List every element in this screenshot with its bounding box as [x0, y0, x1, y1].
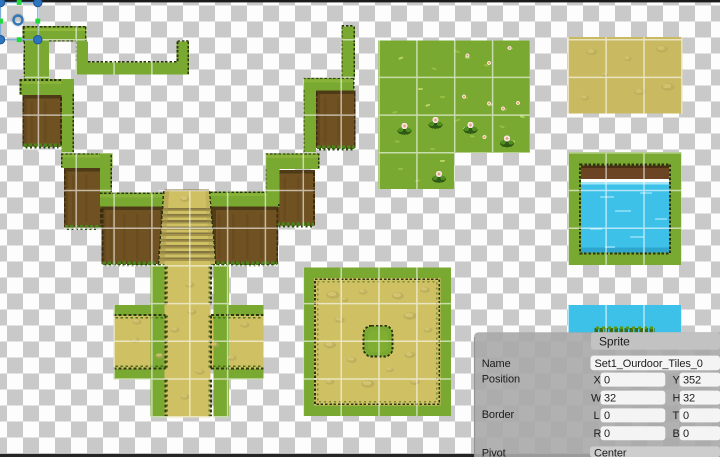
svg-text:W: W — [591, 392, 602, 404]
svg-text:0: 0 — [683, 428, 689, 440]
svg-text:Pivot: Pivot — [482, 448, 506, 457]
svg-text:T: T — [673, 410, 680, 422]
svg-text:Name: Name — [482, 358, 511, 370]
svg-text:B: B — [673, 428, 680, 440]
svg-text:32: 32 — [604, 392, 616, 404]
svg-text:Border: Border — [482, 409, 515, 421]
svg-text:X: X — [594, 374, 602, 386]
svg-text:Position: Position — [482, 373, 520, 385]
svg-text:32: 32 — [683, 392, 695, 404]
svg-text:Center: Center — [594, 448, 627, 457]
svg-text:R: R — [594, 428, 602, 440]
svg-text:0: 0 — [604, 374, 610, 386]
svg-text:352: 352 — [683, 374, 701, 386]
svg-text:L: L — [594, 410, 600, 422]
svg-text:Y: Y — [673, 374, 681, 386]
svg-text:Set1_Ourdoor_Tiles_0: Set1_Ourdoor_Tiles_0 — [595, 358, 703, 370]
svg-text:0: 0 — [604, 428, 610, 440]
svg-text:0: 0 — [604, 410, 610, 422]
svg-text:H: H — [673, 392, 681, 404]
svg-text:Sprite: Sprite — [599, 335, 630, 349]
svg-text:0: 0 — [683, 410, 689, 422]
